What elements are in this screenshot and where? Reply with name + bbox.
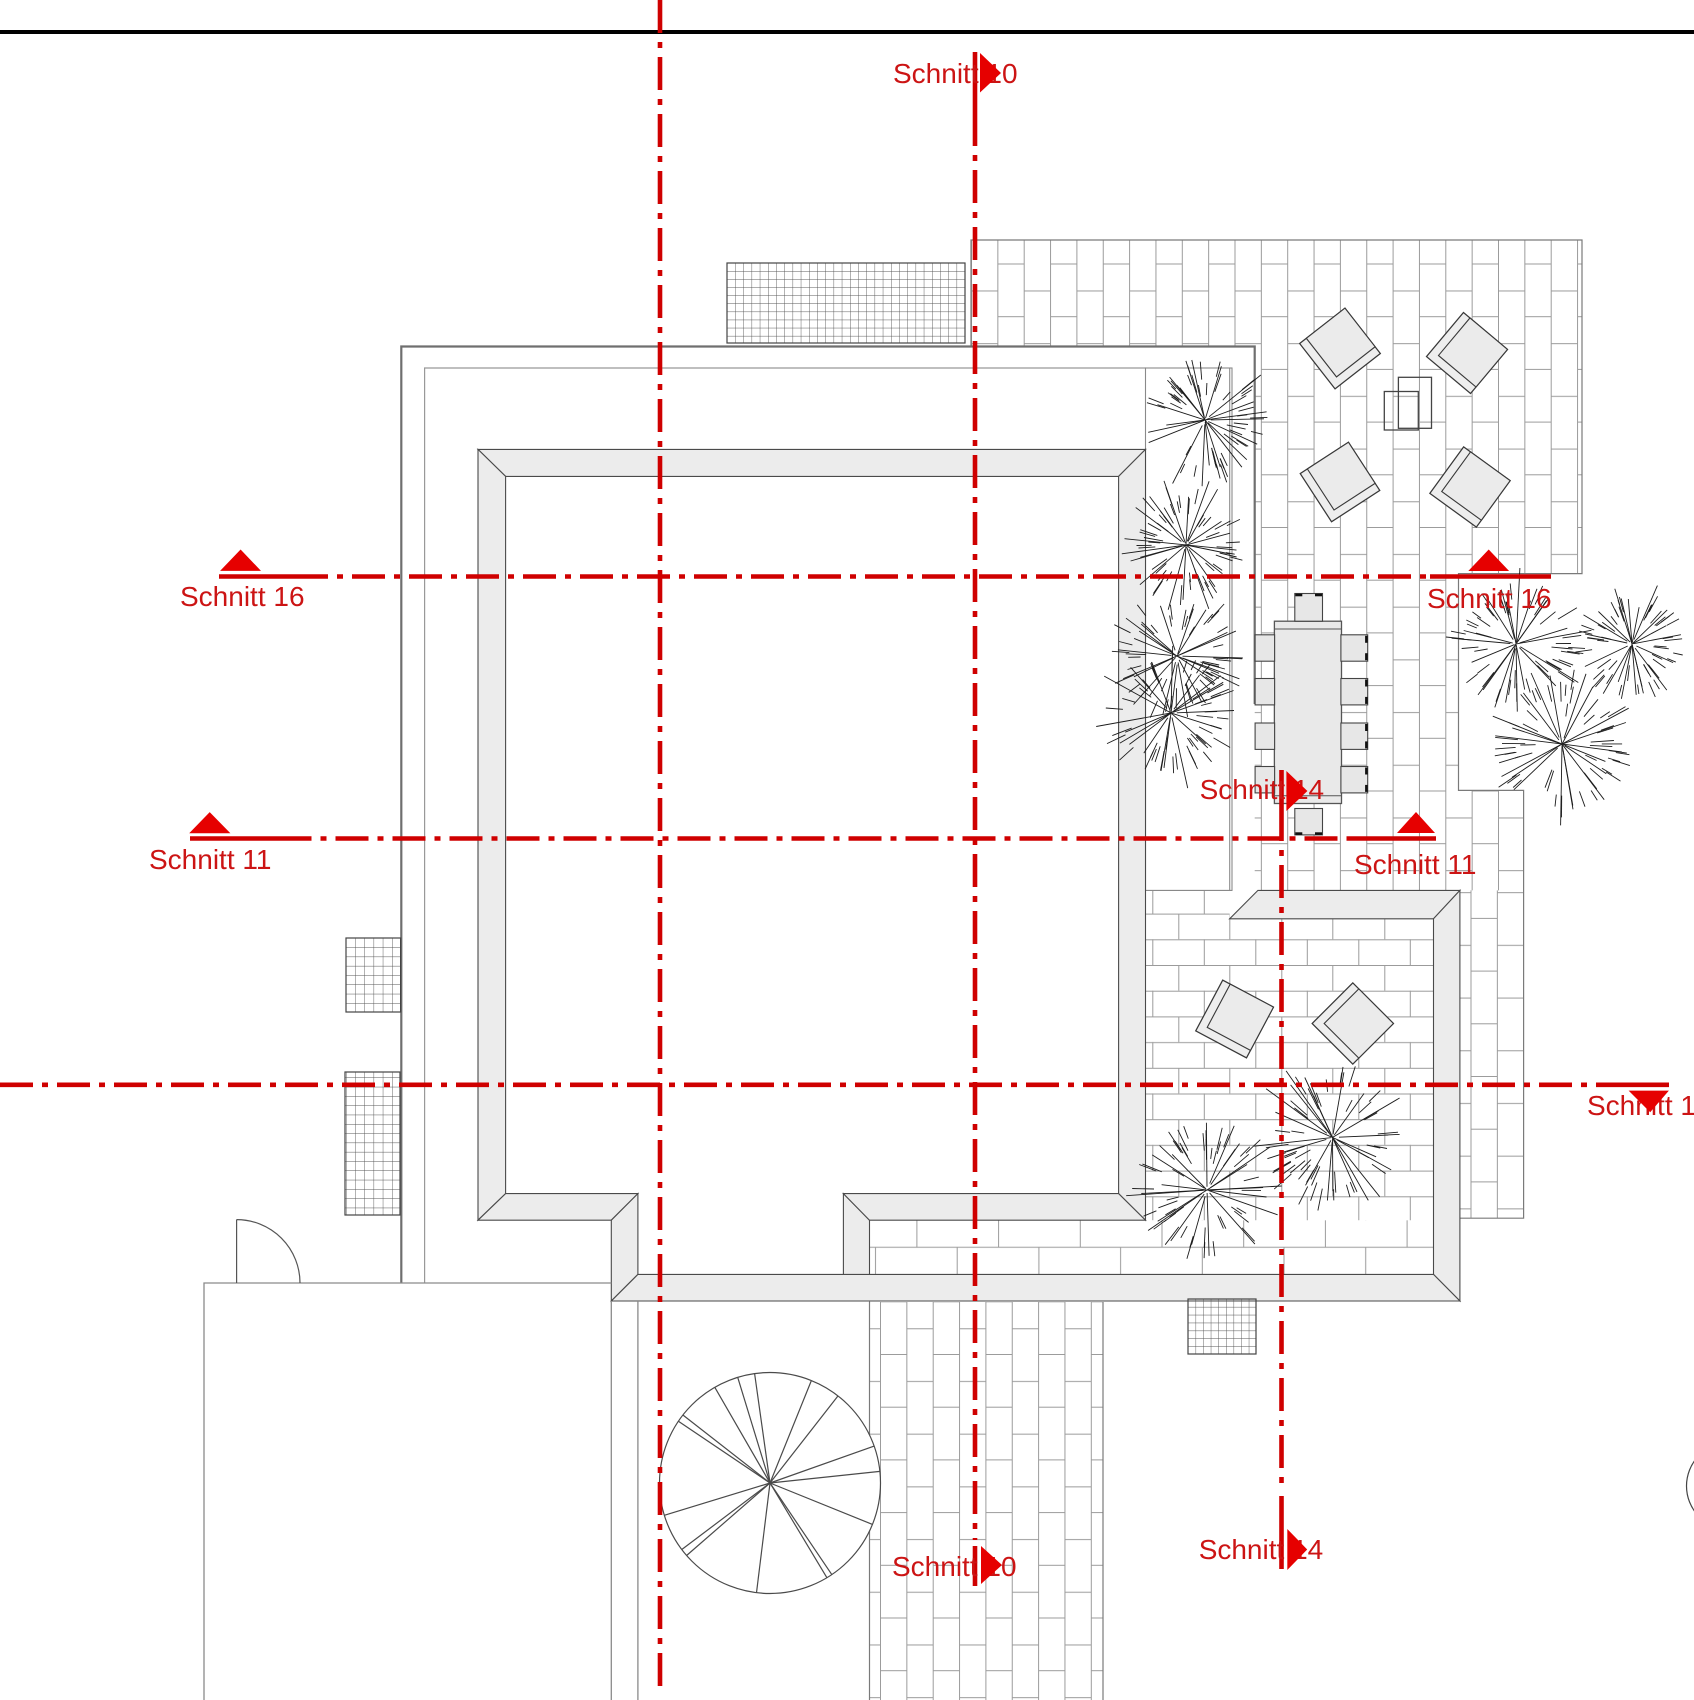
svg-text:Schnitt 16: Schnitt 16 [180, 581, 305, 612]
svg-text:Schnitt 11: Schnitt 11 [149, 844, 271, 875]
svg-text:Schnitt 16: Schnitt 16 [1427, 583, 1552, 614]
svg-text:Schnitt 11: Schnitt 11 [1354, 849, 1476, 880]
